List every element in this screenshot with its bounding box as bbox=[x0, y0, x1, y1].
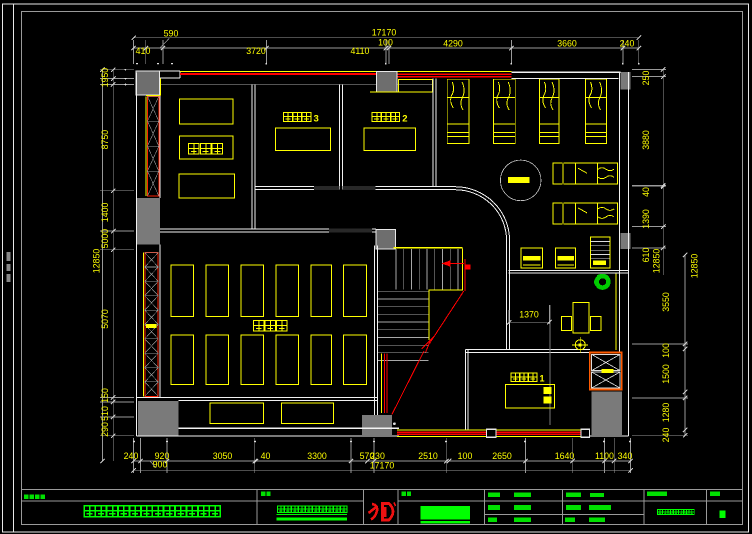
svg-text:17170: 17170 bbox=[372, 28, 397, 38]
svg-text:2: 2 bbox=[402, 113, 407, 124]
svg-text:100: 100 bbox=[378, 38, 393, 48]
svg-text:3660: 3660 bbox=[557, 38, 577, 48]
svg-text:12850: 12850 bbox=[652, 249, 662, 274]
svg-text:590: 590 bbox=[164, 29, 179, 39]
svg-text:5000: 5000 bbox=[100, 229, 110, 249]
svg-text:290: 290 bbox=[100, 422, 110, 437]
svg-text:1500: 1500 bbox=[661, 364, 671, 384]
svg-text:12850: 12850 bbox=[690, 254, 700, 279]
svg-text:410: 410 bbox=[136, 46, 151, 56]
svg-text:250: 250 bbox=[641, 71, 651, 86]
svg-text:17170: 17170 bbox=[370, 461, 395, 471]
svg-text:510: 510 bbox=[100, 406, 110, 421]
svg-text:40: 40 bbox=[261, 451, 271, 461]
svg-text:3720: 3720 bbox=[246, 46, 266, 56]
svg-text:2510: 2510 bbox=[418, 451, 438, 461]
svg-text:1370: 1370 bbox=[519, 310, 539, 320]
svg-text:240: 240 bbox=[124, 451, 139, 461]
svg-text:900: 900 bbox=[153, 460, 168, 470]
svg-text:8750: 8750 bbox=[100, 130, 110, 150]
svg-text:1100: 1100 bbox=[595, 451, 614, 461]
svg-text:3550: 3550 bbox=[661, 292, 671, 312]
svg-text:3: 3 bbox=[314, 113, 319, 124]
svg-text:230: 230 bbox=[370, 451, 385, 461]
svg-text:1390: 1390 bbox=[641, 209, 651, 229]
svg-text:240: 240 bbox=[620, 38, 635, 48]
svg-text:1: 1 bbox=[540, 373, 545, 383]
svg-text:1640: 1640 bbox=[555, 451, 575, 461]
svg-text:3880: 3880 bbox=[641, 130, 651, 150]
svg-text:4290: 4290 bbox=[443, 38, 463, 48]
svg-text:1950: 1950 bbox=[100, 68, 110, 88]
svg-text:100: 100 bbox=[458, 451, 473, 461]
svg-text:3300: 3300 bbox=[307, 451, 327, 461]
svg-text:5070: 5070 bbox=[100, 309, 110, 329]
svg-text:340: 340 bbox=[618, 451, 633, 461]
svg-text:4110: 4110 bbox=[351, 46, 370, 56]
svg-text:100: 100 bbox=[661, 343, 671, 358]
svg-text:240: 240 bbox=[661, 428, 671, 443]
svg-text:40: 40 bbox=[641, 187, 651, 197]
svg-text:150: 150 bbox=[100, 388, 110, 403]
svg-text:3050: 3050 bbox=[213, 451, 233, 461]
svg-text:1400: 1400 bbox=[100, 203, 110, 223]
svg-text:1280: 1280 bbox=[661, 403, 671, 423]
svg-text:12850: 12850 bbox=[92, 249, 102, 274]
svg-text:2650: 2650 bbox=[492, 451, 512, 461]
svg-text:610: 610 bbox=[641, 248, 651, 263]
